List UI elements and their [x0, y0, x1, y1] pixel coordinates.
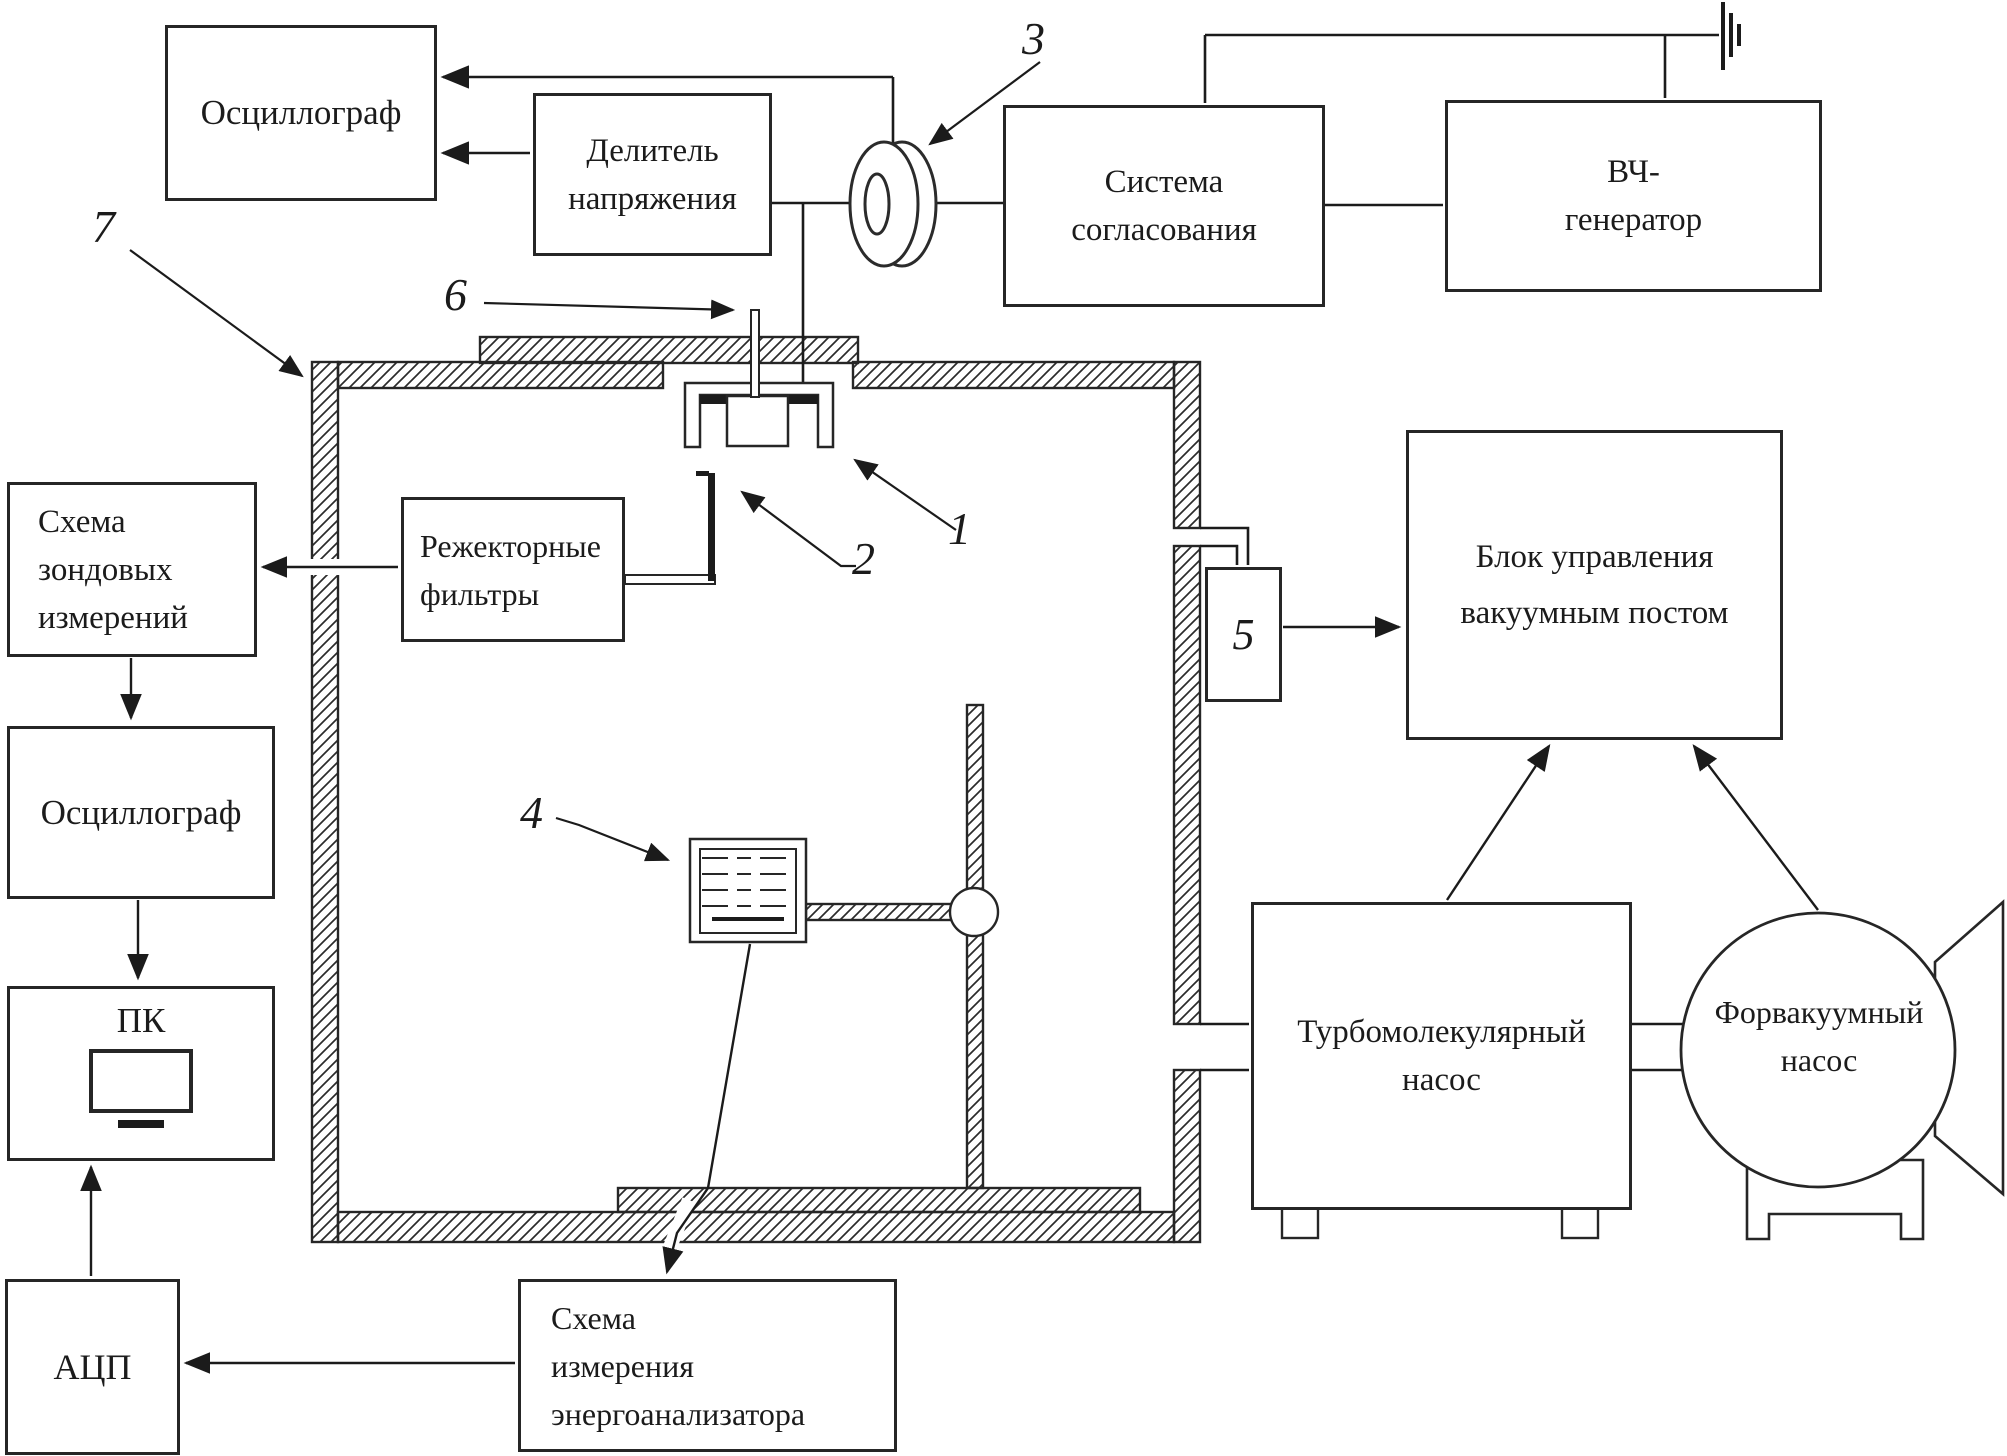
- box-label: насос: [1680, 1036, 1958, 1084]
- ground-wire: [1205, 35, 1719, 103]
- probe-shaft: [708, 473, 715, 581]
- turbopump-foot: [1282, 1208, 1318, 1238]
- oscilloscope-left-box: Осциллограф: [7, 726, 275, 899]
- pc-box: ПК: [7, 986, 275, 1161]
- manipulator-joint: [950, 888, 998, 936]
- manipulator-arm: [806, 904, 967, 920]
- box-label: АЦП: [54, 1343, 132, 1391]
- vacuum-control-unit-box: Блок управления вакуумным постом: [1406, 430, 1783, 740]
- box-label: Режекторные: [420, 522, 601, 570]
- box-label: фильтры: [420, 570, 539, 618]
- box-label: вакуумным постом: [1460, 585, 1728, 641]
- callout-6-leader: [484, 303, 733, 310]
- callout-3: 3: [1022, 16, 1045, 62]
- probe-tip: [696, 471, 709, 476]
- electrode-contact-strip: [700, 395, 728, 404]
- gas-tube-to-valve: [1200, 528, 1248, 565]
- box-label: 5: [1233, 611, 1255, 659]
- box-label: генератор: [1565, 196, 1702, 244]
- callout-4: 4: [520, 790, 543, 836]
- callout-4-leader: [556, 818, 668, 860]
- box-label: согласования: [1071, 206, 1257, 254]
- turbopump-foot: [1562, 1208, 1598, 1238]
- chamber-left-wall: [312, 362, 338, 1242]
- chamber-floor-plate: [618, 1188, 1140, 1212]
- callout-7: 7: [92, 204, 115, 250]
- box-label: зондовых: [38, 546, 173, 594]
- valve-5-box: 5: [1205, 567, 1282, 702]
- vacuum-chamber-walls: [312, 337, 1200, 1242]
- turbopump-to-control-arrow: [1447, 746, 1549, 900]
- box-label: ПК: [117, 997, 166, 1045]
- callout-2-leader: [742, 492, 856, 566]
- callout-7-leader: [130, 250, 302, 376]
- chamber-top-wall-left: [338, 362, 663, 388]
- box-label: насос: [1402, 1056, 1481, 1104]
- turbopump-box: Турбомолекулярный насос: [1251, 902, 1632, 1210]
- energy-analyzer-icon: [690, 839, 806, 942]
- chamber-right-wall-middle: [1174, 546, 1200, 1024]
- box-label: Осциллограф: [201, 89, 402, 137]
- box-label: Делитель: [586, 127, 718, 175]
- box-label: ВЧ-: [1607, 148, 1660, 196]
- chamber-bottom-wall: [338, 1212, 1174, 1242]
- probe-lead: [625, 575, 715, 584]
- box-label: напряжения: [568, 175, 737, 223]
- rf-generator-box: ВЧ- генератор: [1445, 100, 1822, 292]
- forepump-label: Форвакуумный насос: [1680, 988, 1958, 1084]
- monitor-stand-icon: [118, 1120, 164, 1128]
- box-label: Система: [1105, 158, 1224, 206]
- schematic-page: Осциллограф Делитель напряжения Система …: [0, 0, 2007, 1456]
- box-label: Схема: [551, 1294, 636, 1342]
- rf-electrode: [727, 396, 788, 446]
- probe-measurement-circuit-box: Схема зондовых измерений: [7, 482, 257, 657]
- box-label: Осциллограф: [41, 789, 242, 837]
- voltage-divider-box: Делитель напряжения: [533, 93, 772, 256]
- monitor-icon: [89, 1049, 193, 1113]
- box-label: Форвакуумный: [1680, 988, 1958, 1036]
- adc-box: АЦП: [5, 1279, 180, 1455]
- box-label: Турбомолекулярный: [1297, 1008, 1586, 1056]
- chamber-top-lid: [480, 337, 858, 363]
- energy-analyzer-circuit-box: Схема измерения энергоанализатора: [518, 1279, 897, 1452]
- electrode-contact-strip: [787, 395, 818, 404]
- notch-filters-box: Режекторные фильтры: [401, 497, 625, 642]
- callout-2: 2: [852, 536, 875, 582]
- box-label: измерения: [551, 1342, 694, 1390]
- ground-icon: [1723, 2, 1739, 70]
- antenna-rod: [751, 310, 759, 397]
- chamber-right-wall-lower: [1174, 1070, 1200, 1242]
- box-label: измерений: [38, 594, 188, 642]
- box-label: энергоанализатора: [551, 1390, 805, 1438]
- callout-6: 6: [444, 272, 467, 318]
- box-label: Блок управления: [1476, 529, 1714, 585]
- chamber-top-wall-right: [853, 362, 1174, 388]
- box-label: Схема: [38, 498, 126, 546]
- manipulator-post: [967, 705, 983, 1188]
- callout-1: 1: [948, 506, 971, 552]
- chamber-right-wall-upper: [1174, 362, 1200, 528]
- current-transformer-icon: [850, 142, 936, 266]
- forepump-to-control-arrow: [1694, 746, 1818, 910]
- matching-system-box: Система согласования: [1003, 105, 1325, 307]
- callout-1-leader: [855, 460, 956, 530]
- oscilloscope-top-box: Осциллограф: [165, 25, 437, 201]
